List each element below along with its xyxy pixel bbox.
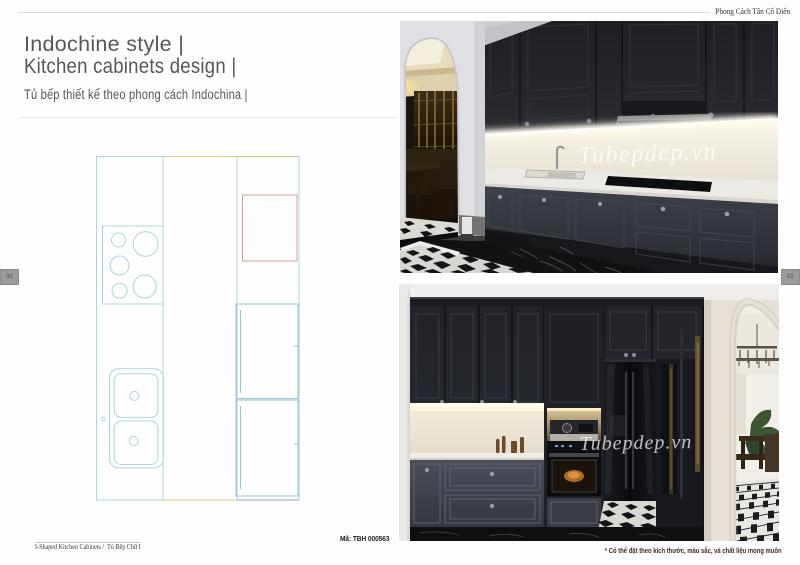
svg-text:Tubepdep.vn: Tubepdep.vn (579, 431, 692, 455)
svg-text:Tubepdep.vn: Tubepdep.vn (578, 139, 717, 170)
